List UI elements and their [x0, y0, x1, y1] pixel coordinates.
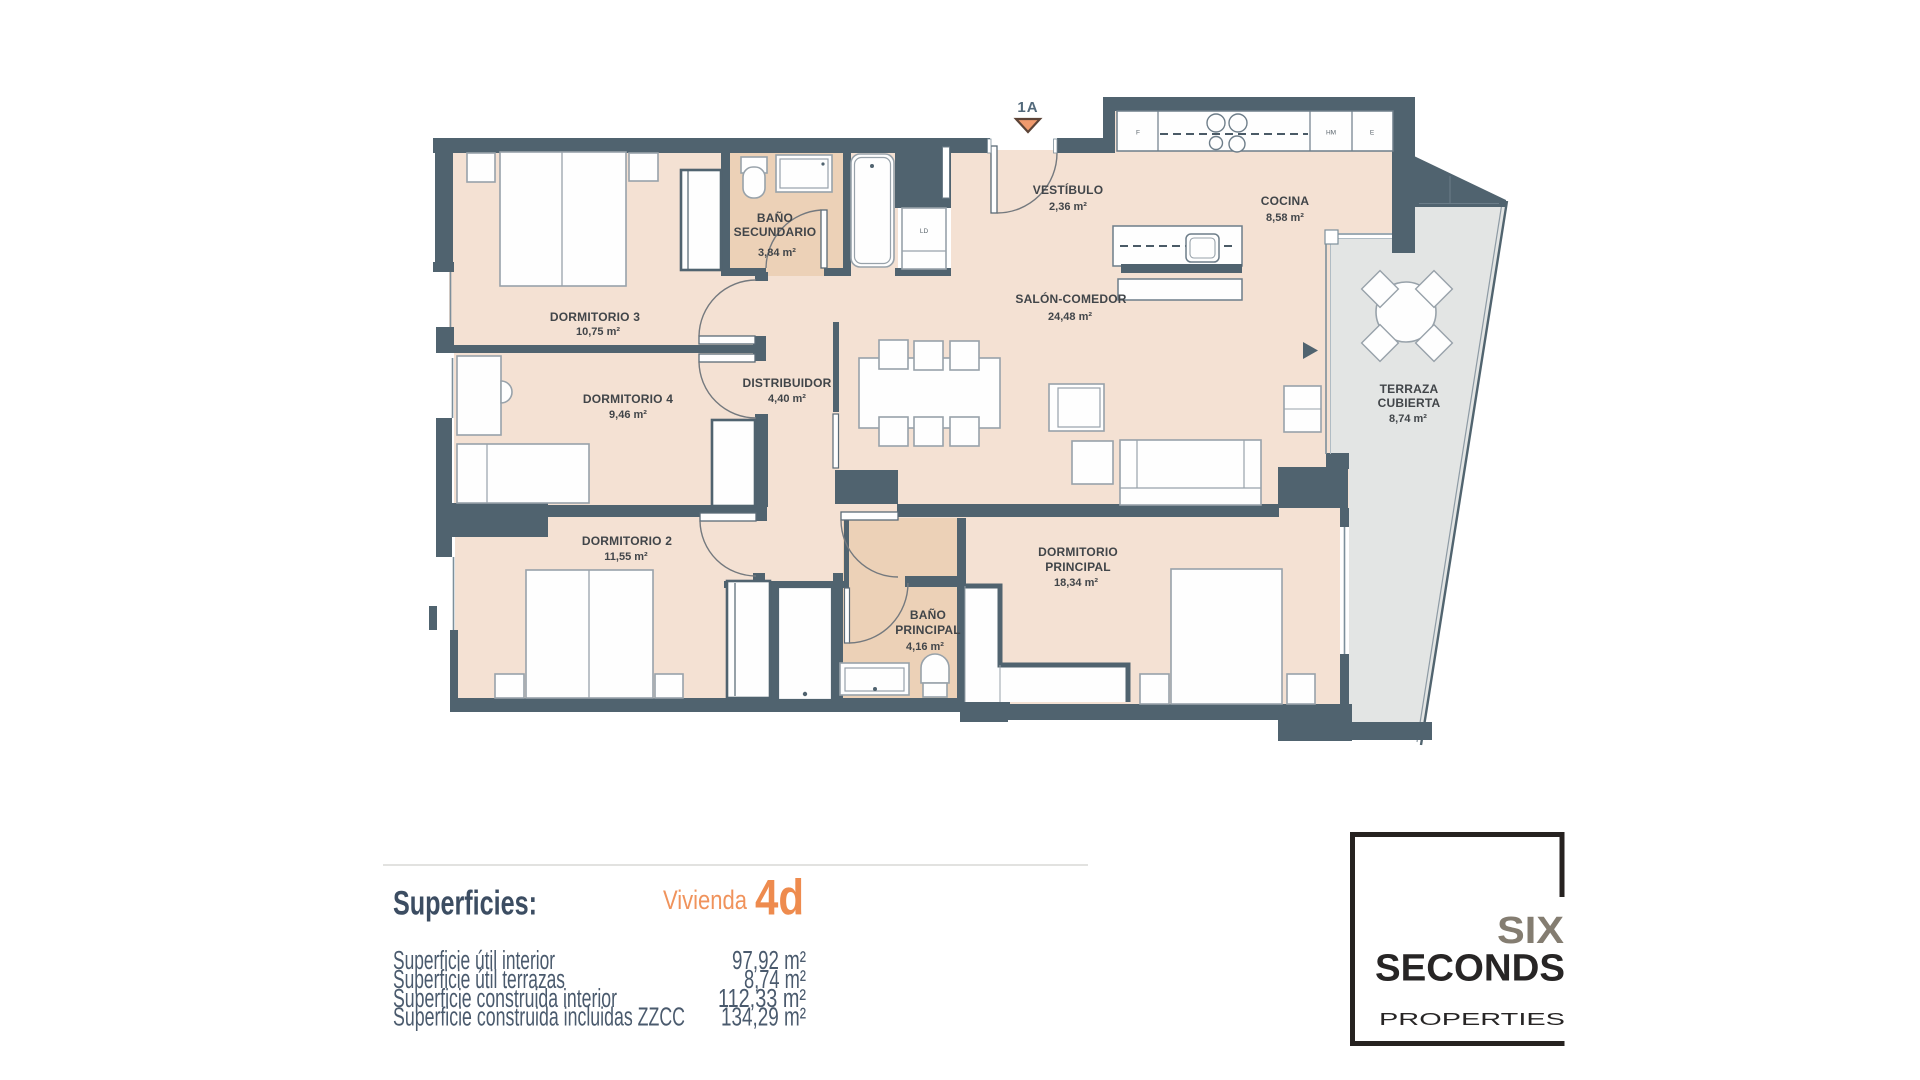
- svg-text:Superficie construida incluida: Superficie construida incluidas ZZCC: [393, 1004, 685, 1032]
- svg-text:SALÓN-COMEDOR: SALÓN-COMEDOR: [1015, 291, 1126, 306]
- svg-text:BAÑO: BAÑO: [910, 607, 946, 622]
- svg-text:18,34 m²: 18,34 m²: [1054, 577, 1098, 589]
- svg-text:COCINA: COCINA: [1261, 194, 1310, 208]
- svg-text:E: E: [1370, 130, 1375, 137]
- svg-text:F: F: [1136, 130, 1140, 137]
- svg-text:134,29 m²: 134,29 m²: [721, 1004, 806, 1032]
- svg-text:10,75 m²: 10,75 m²: [576, 326, 620, 338]
- svg-text:HM: HM: [1326, 130, 1336, 137]
- svg-text:9,46 m²: 9,46 m²: [609, 409, 647, 421]
- svg-text:PRINCIPAL: PRINCIPAL: [1045, 560, 1111, 574]
- svg-text:BAÑO: BAÑO: [757, 210, 793, 225]
- svg-text:DORMITORIO 4: DORMITORIO 4: [583, 392, 673, 406]
- svg-text:DORMITORIO: DORMITORIO: [1038, 545, 1118, 559]
- svg-text:PROPERTIES: PROPERTIES: [1379, 1009, 1565, 1029]
- svg-text:SECONDS: SECONDS: [1375, 948, 1565, 990]
- svg-text:SIX: SIX: [1497, 910, 1565, 952]
- svg-text:1A: 1A: [1017, 99, 1038, 116]
- svg-text:8,58 m²: 8,58 m²: [1266, 212, 1304, 224]
- svg-text:Superficies:: Superficies:: [393, 885, 537, 923]
- svg-text:SECUNDARIO: SECUNDARIO: [734, 225, 817, 239]
- svg-text:4,16 m²: 4,16 m²: [906, 641, 944, 653]
- svg-text:LD: LD: [920, 228, 929, 235]
- svg-text:VESTÍBULO: VESTÍBULO: [1033, 182, 1103, 197]
- svg-text:4,40 m²: 4,40 m²: [768, 393, 806, 405]
- svg-text:4d: 4d: [755, 870, 804, 926]
- svg-text:CUBIERTA: CUBIERTA: [1378, 396, 1441, 410]
- svg-text:8,74 m²: 8,74 m²: [1389, 413, 1427, 425]
- svg-text:Vivienda: Vivienda: [663, 885, 748, 915]
- svg-text:DISTRIBUIDOR: DISTRIBUIDOR: [742, 376, 831, 390]
- svg-text:DORMITORIO 2: DORMITORIO 2: [582, 534, 672, 548]
- svg-text:2,36 m²: 2,36 m²: [1049, 201, 1087, 213]
- svg-text:24,48 m²: 24,48 m²: [1048, 311, 1092, 323]
- svg-text:3,84 m²: 3,84 m²: [758, 247, 796, 259]
- svg-text:PRINCIPAL: PRINCIPAL: [895, 623, 961, 637]
- svg-text:DORMITORIO 3: DORMITORIO 3: [550, 310, 640, 324]
- svg-text:TERRAZA: TERRAZA: [1380, 382, 1439, 396]
- svg-text:11,55 m²: 11,55 m²: [604, 551, 648, 563]
